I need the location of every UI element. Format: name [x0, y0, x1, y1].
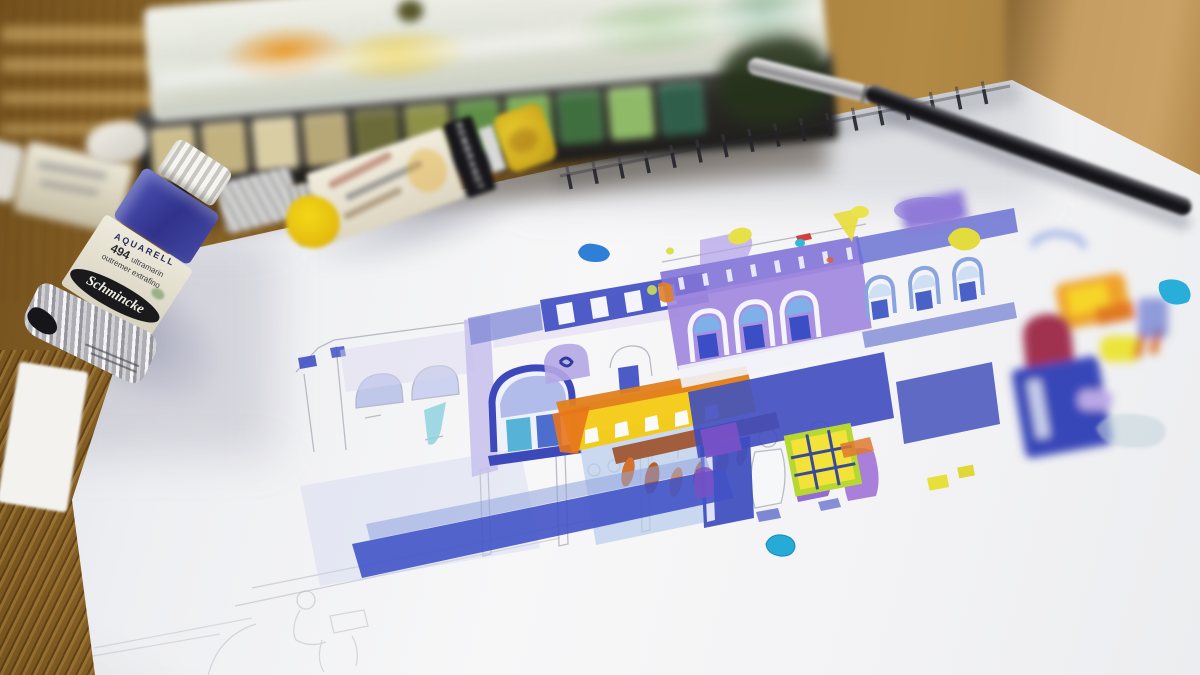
- cap-stain: [505, 124, 541, 156]
- binding-coils: [568, 92, 1008, 182]
- label-marking: [37, 161, 107, 180]
- spiral-binding: [0, 0, 1200, 675]
- photo-canvas: REMBRANDT AQUARELL 494 ultramarin outrem…: [0, 0, 1200, 675]
- paint-stain: [401, 143, 453, 198]
- label-marking: [39, 180, 99, 196]
